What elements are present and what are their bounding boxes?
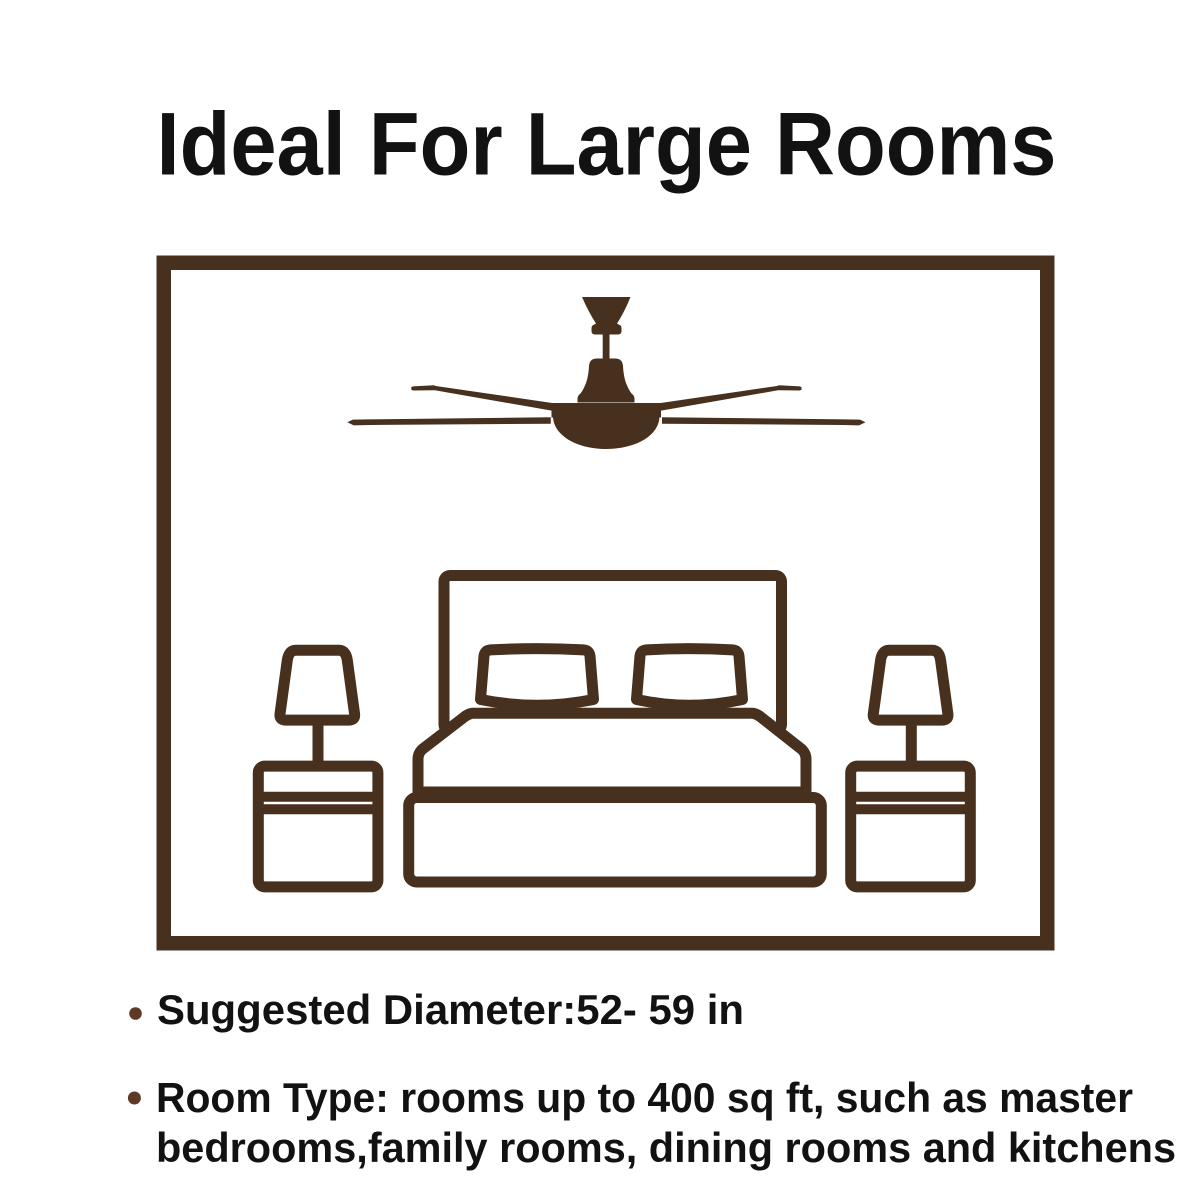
svg-text:bedrooms,family rooms, dining: bedrooms,family rooms, dining rooms and … xyxy=(156,1124,1176,1171)
svg-text:Ideal For Large Rooms: Ideal For Large Rooms xyxy=(157,93,1057,193)
svg-text:Room Type: rooms up to 400 sq: Room Type: rooms up to 400 sq ft, such a… xyxy=(156,1074,1133,1121)
svg-text:Suggested Diameter:52- 59 in: Suggested Diameter:52- 59 in xyxy=(157,986,744,1033)
